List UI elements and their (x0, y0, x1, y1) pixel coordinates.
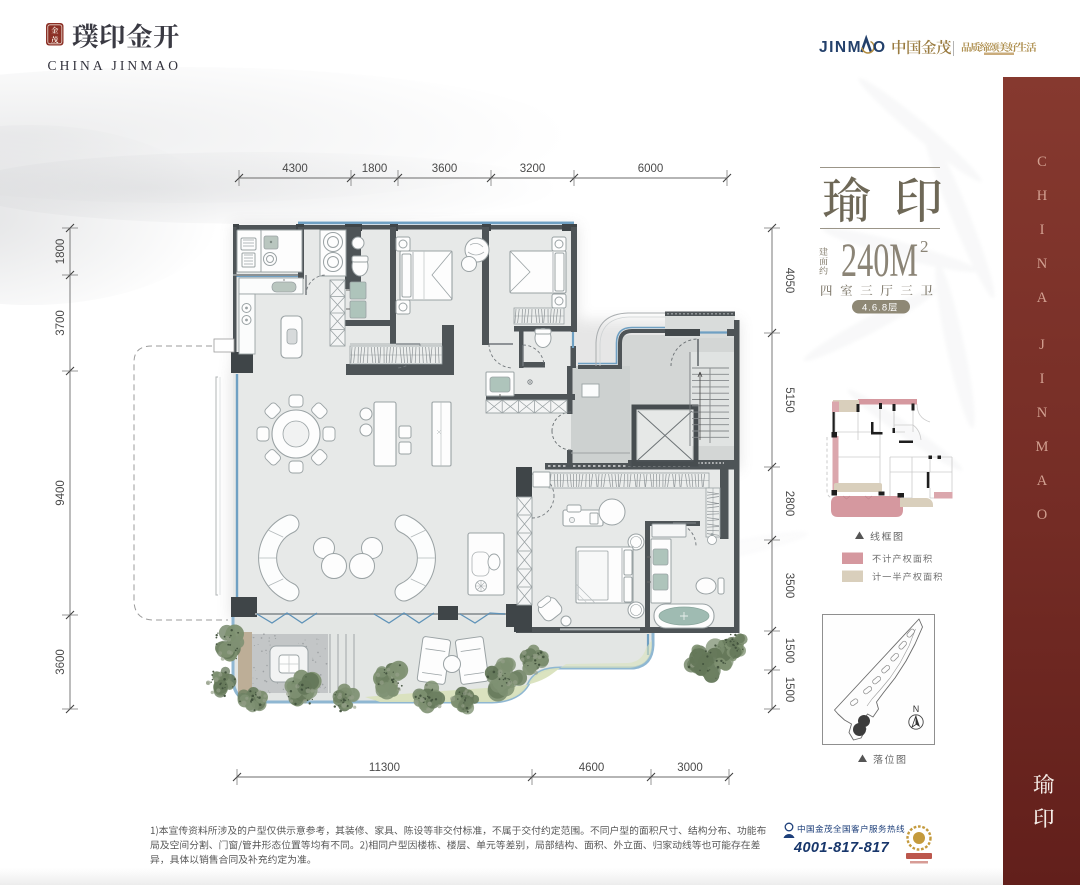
svg-text:1800: 1800 (55, 239, 67, 265)
svg-text:2800: 2800 (783, 491, 795, 517)
svg-text:1800: 1800 (362, 163, 388, 175)
svg-text:3600: 3600 (55, 649, 67, 675)
svg-text:3000: 3000 (677, 762, 703, 774)
svg-text:3200: 3200 (520, 163, 546, 175)
svg-text:3700: 3700 (55, 310, 67, 336)
svg-text:3600: 3600 (432, 163, 458, 175)
svg-text:1500: 1500 (783, 638, 795, 664)
svg-text:11300: 11300 (369, 762, 400, 774)
svg-text:5150: 5150 (783, 387, 795, 413)
svg-text:4050: 4050 (783, 268, 795, 294)
svg-text:1500: 1500 (783, 677, 795, 703)
svg-text:4600: 4600 (579, 762, 605, 774)
svg-text:9400: 9400 (55, 480, 67, 506)
svg-text:4300: 4300 (282, 163, 308, 175)
svg-text:3500: 3500 (783, 573, 795, 599)
svg-text:6000: 6000 (638, 163, 664, 175)
